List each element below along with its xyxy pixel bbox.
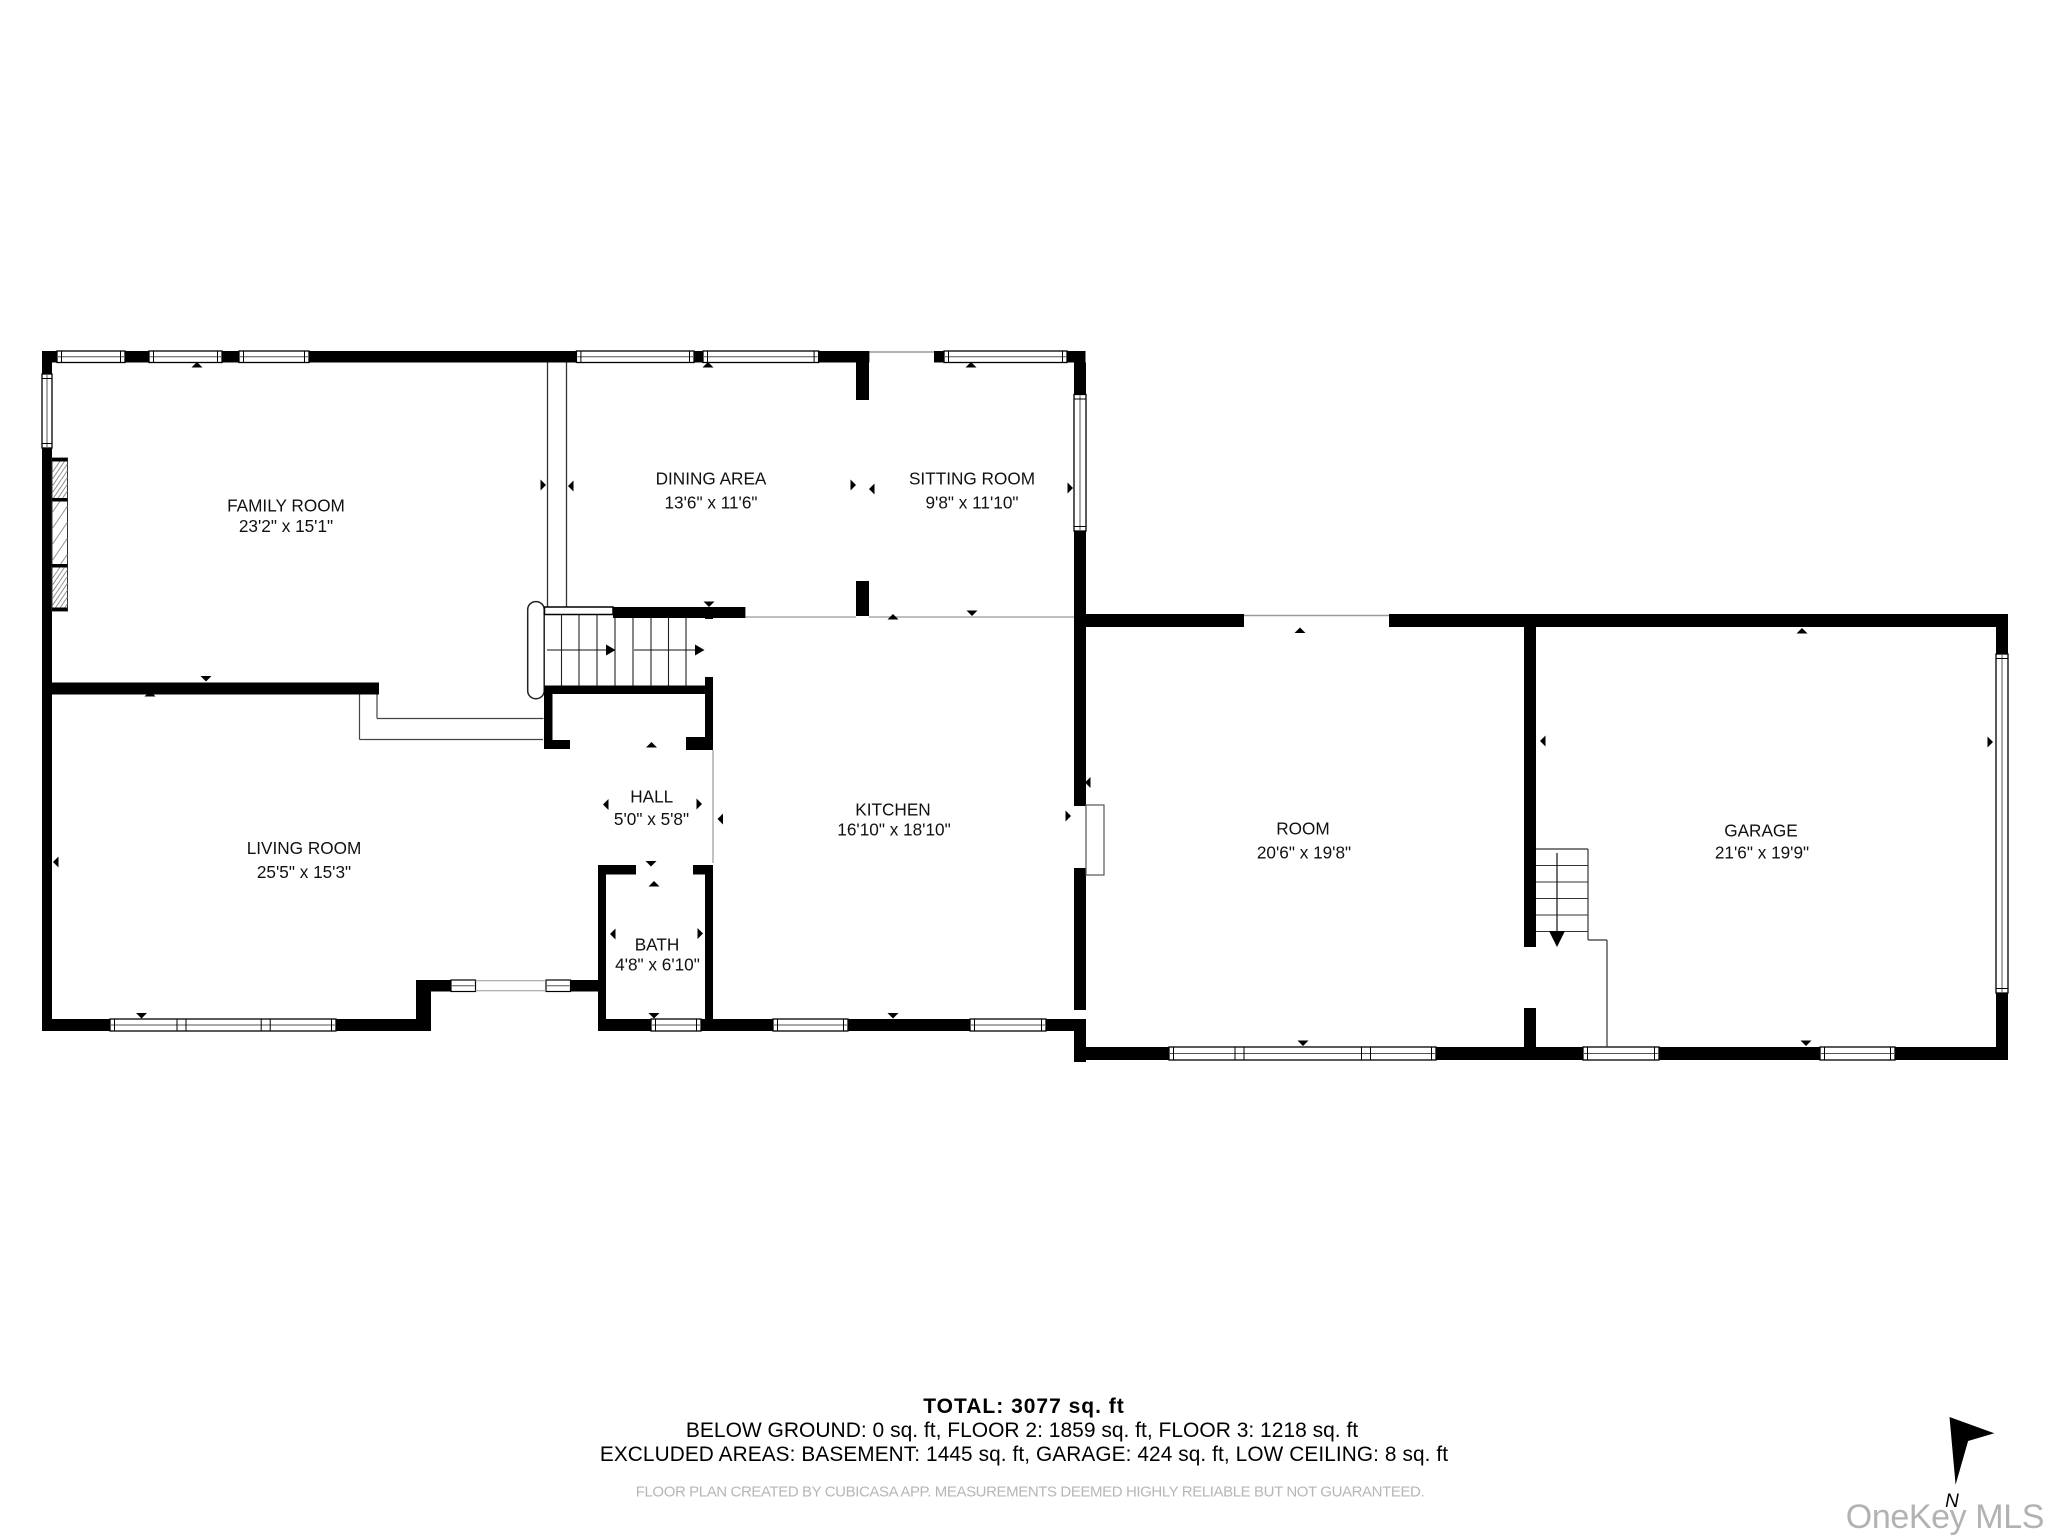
svg-text:25'5" x 15'3": 25'5" x 15'3": [257, 862, 351, 882]
svg-text:BELOW GROUND: 0 sq. ft, FLOOR: BELOW GROUND: 0 sq. ft, FLOOR 2: 1859 sq…: [686, 1419, 1358, 1442]
svg-text:23'2" x 15'1": 23'2" x 15'1": [239, 516, 333, 536]
svg-text:KITCHEN: KITCHEN: [855, 800, 930, 820]
svg-text:13'6" x 11'6": 13'6" x 11'6": [665, 493, 758, 513]
svg-text:20'6" x 19'8": 20'6" x 19'8": [1257, 843, 1351, 863]
svg-text:HALL: HALL: [630, 787, 673, 807]
svg-text:21'6" x 19'9": 21'6" x 19'9": [1715, 843, 1809, 863]
svg-text:4'8" x 6'10": 4'8" x 6'10": [615, 955, 700, 975]
svg-text:5'0" x 5'8": 5'0" x 5'8": [614, 809, 689, 829]
svg-text:LIVING ROOM: LIVING ROOM: [247, 838, 362, 858]
svg-text:SITTING ROOM: SITTING ROOM: [909, 469, 1035, 489]
svg-text:FLOOR PLAN CREATED BY CUBICASA: FLOOR PLAN CREATED BY CUBICASA APP. MEAS…: [636, 1483, 1425, 1500]
svg-text:FAMILY ROOM: FAMILY ROOM: [227, 496, 345, 516]
svg-text:OneKey MLS: OneKey MLS: [1846, 1498, 2044, 1536]
svg-text:9'8" x 11'10": 9'8" x 11'10": [926, 493, 1019, 513]
svg-text:GARAGE: GARAGE: [1724, 821, 1798, 841]
svg-text:ROOM: ROOM: [1276, 819, 1329, 839]
svg-text:16'10" x 18'10": 16'10" x 18'10": [837, 820, 950, 840]
svg-text:TOTAL: 3077 sq. ft: TOTAL: 3077 sq. ft: [923, 1395, 1125, 1418]
svg-text:BATH: BATH: [635, 935, 680, 955]
svg-text:EXCLUDED AREAS: BASEMENT: 1445: EXCLUDED AREAS: BASEMENT: 1445 sq. ft, G…: [600, 1443, 1448, 1466]
svg-text:DINING AREA: DINING AREA: [656, 469, 767, 489]
